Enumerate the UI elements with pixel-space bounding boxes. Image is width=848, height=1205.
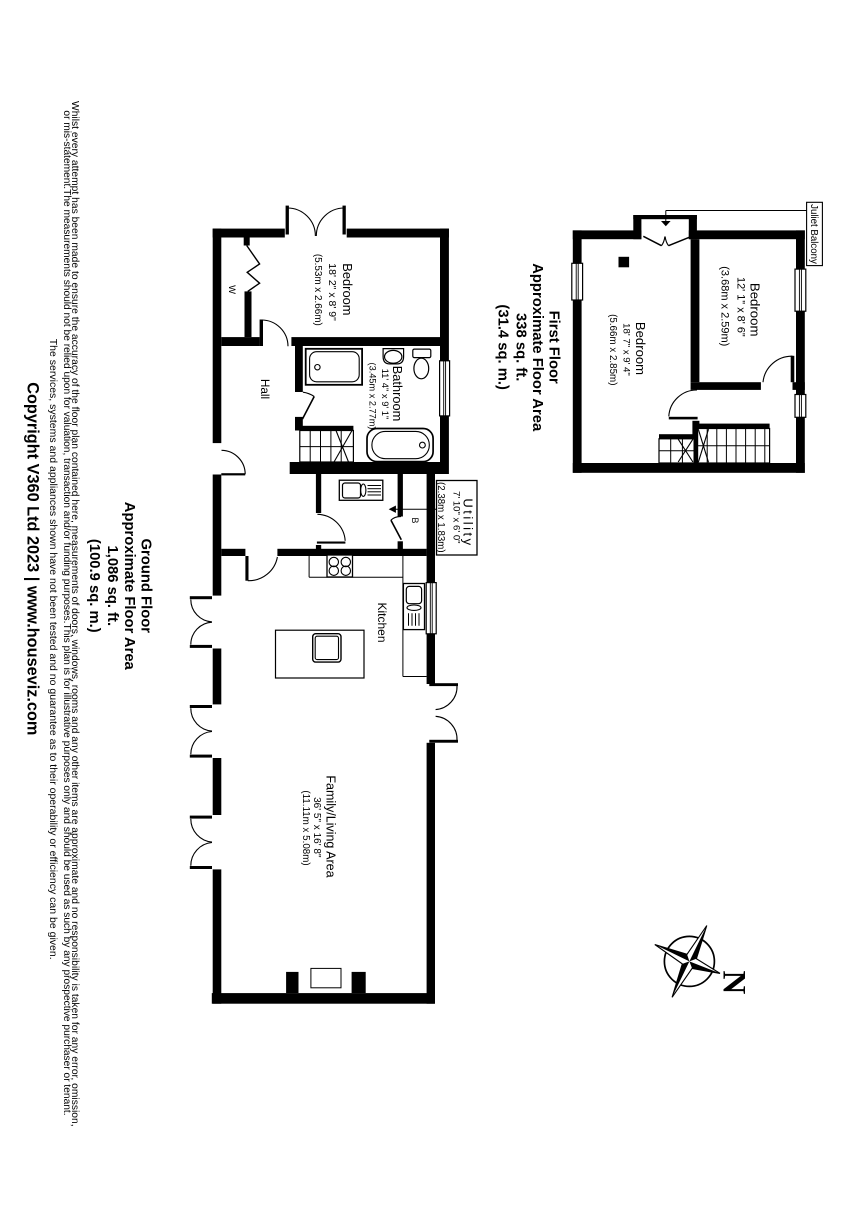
svg-text:or mis-statement.The measureme: or mis-statement.The measurements should… — [61, 110, 72, 1115]
svg-text:Approximate Floor Area: Approximate Floor Area — [529, 263, 545, 432]
svg-text:36' 5" x 16' 8": 36' 5" x 16' 8" — [311, 797, 322, 858]
svg-text:(5.53m x 2.66m): (5.53m x 2.66m) — [312, 254, 323, 326]
svg-text:Family/Living Area: Family/Living Area — [324, 775, 338, 877]
svg-text:(31.4 sq. m.): (31.4 sq. m.) — [494, 304, 510, 390]
svg-text:18' 2" x 8' 9": 18' 2" x 8' 9" — [326, 263, 338, 321]
svg-text:N: N — [716, 970, 752, 994]
svg-text:Copyright V360 Ltd 2023 | www.: Copyright V360 Ltd 2023 | www.houseviz.c… — [23, 382, 41, 735]
svg-text:Utility: Utility — [461, 498, 476, 547]
svg-text:12' 1" x 8' 6": 12' 1" x 8' 6" — [735, 277, 747, 337]
svg-text:W: W — [227, 285, 238, 294]
svg-text:11' 4" x 9' 1": 11' 4" x 9' 1" — [380, 369, 391, 420]
svg-text:B: B — [410, 518, 420, 524]
svg-text:1,086 sq. ft.: 1,086 sq. ft. — [104, 545, 120, 626]
svg-text:Bedroom: Bedroom — [748, 283, 763, 337]
svg-text:(2.38m x 1.83m): (2.38m x 1.83m) — [435, 482, 446, 553]
svg-text:Kitchen: Kitchen — [375, 602, 389, 642]
svg-text:(5.66m x 2.85m): (5.66m x 2.85m) — [607, 314, 618, 385]
svg-text:338 sq. ft.: 338 sq. ft. — [513, 313, 529, 381]
svg-text:Bedroom: Bedroom — [340, 263, 355, 315]
svg-text:(100.9 sq. m.): (100.9 sq. m.) — [86, 539, 102, 633]
svg-text:Juliet Balcony: Juliet Balcony — [808, 204, 819, 264]
svg-text:Ground Floor: Ground Floor — [138, 539, 154, 634]
svg-text:The services, systems and appl: The services, systems and appliances sho… — [47, 339, 59, 960]
svg-text:(3.45m x 2.77m): (3.45m x 2.77m) — [367, 363, 377, 430]
svg-text:18' 7" x 9' 4": 18' 7" x 9' 4" — [620, 323, 631, 376]
svg-text:First Floor: First Floor — [545, 311, 561, 384]
svg-text:7' 10" x 6' 0": 7' 10" x 6' 0" — [451, 491, 462, 544]
svg-text:Hall: Hall — [258, 379, 272, 399]
svg-text:(11.11m x 5.08m): (11.11m x 5.08m) — [300, 790, 311, 865]
svg-text:Approximate Floor Area: Approximate Floor Area — [121, 502, 137, 671]
svg-text:Bathroom: Bathroom — [390, 366, 405, 421]
svg-text:(3.68m x 2.59m): (3.68m x 2.59m) — [719, 266, 731, 346]
svg-text:Bedroom: Bedroom — [633, 322, 648, 375]
